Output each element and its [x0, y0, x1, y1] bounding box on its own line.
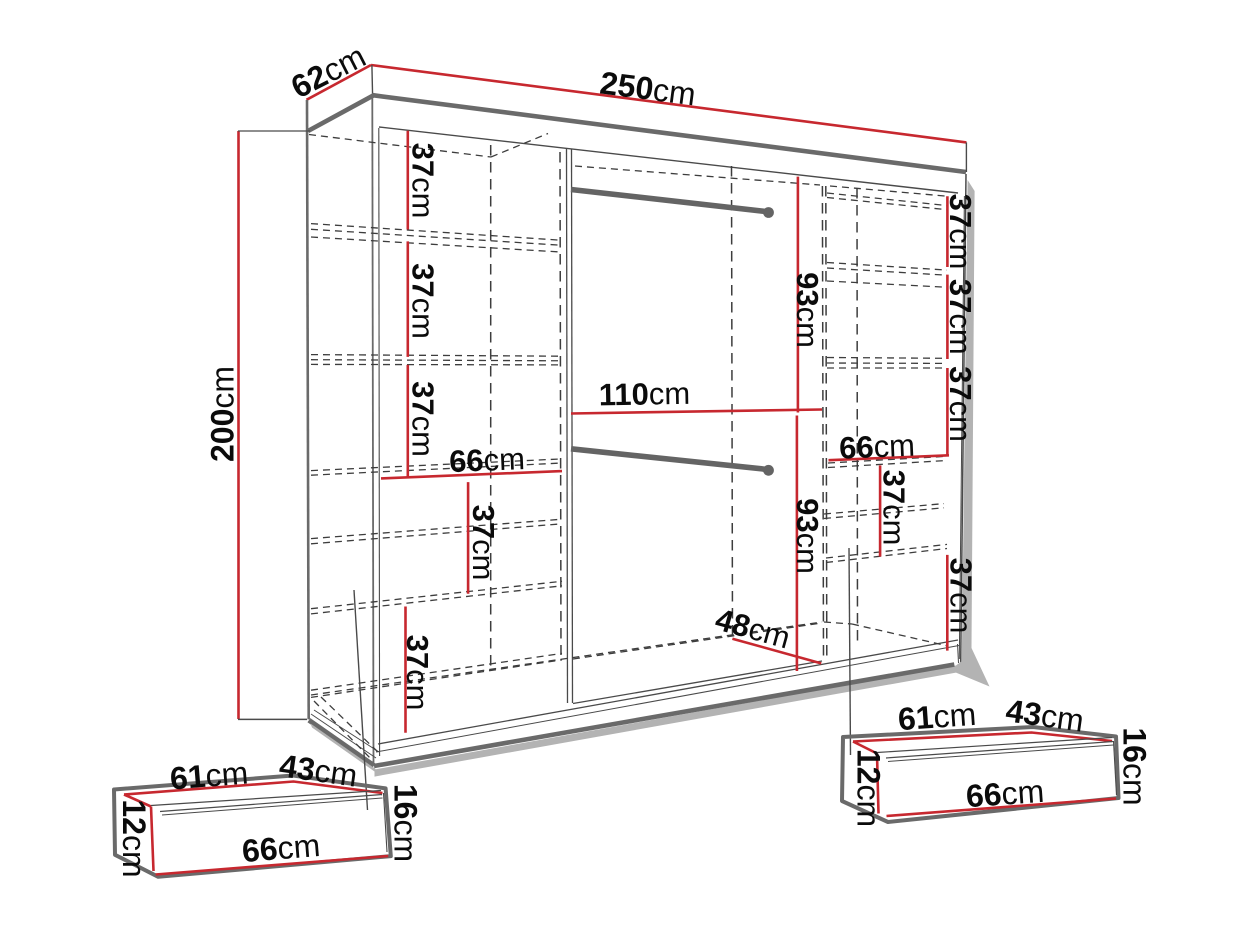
svg-text:16cm: 16cm	[388, 784, 424, 862]
svg-text:66cm: 66cm	[965, 773, 1046, 814]
svg-text:110cm: 110cm	[599, 376, 691, 413]
svg-text:37cm: 37cm	[943, 558, 978, 634]
svg-text:12cm: 12cm	[851, 749, 887, 827]
svg-text:66cm: 66cm	[838, 427, 915, 465]
svg-text:93cm: 93cm	[790, 272, 825, 348]
svg-text:66cm: 66cm	[448, 441, 525, 479]
svg-text:37cm: 37cm	[943, 279, 978, 355]
svg-text:66cm: 66cm	[241, 827, 322, 869]
svg-text:37cm: 37cm	[405, 143, 440, 219]
svg-text:37cm: 37cm	[876, 470, 911, 546]
svg-text:93cm: 93cm	[790, 498, 825, 574]
svg-text:61cm: 61cm	[169, 754, 250, 796]
svg-text:61cm: 61cm	[897, 696, 978, 737]
svg-text:37cm: 37cm	[405, 263, 440, 339]
svg-text:37cm: 37cm	[943, 194, 978, 270]
svg-text:37cm: 37cm	[466, 505, 501, 581]
svg-text:37cm: 37cm	[405, 381, 440, 457]
svg-text:16cm: 16cm	[1117, 727, 1153, 805]
svg-text:12cm: 12cm	[116, 799, 152, 877]
svg-text:37cm: 37cm	[400, 635, 435, 711]
svg-text:37cm: 37cm	[943, 366, 978, 442]
svg-text:200cm: 200cm	[205, 366, 241, 462]
